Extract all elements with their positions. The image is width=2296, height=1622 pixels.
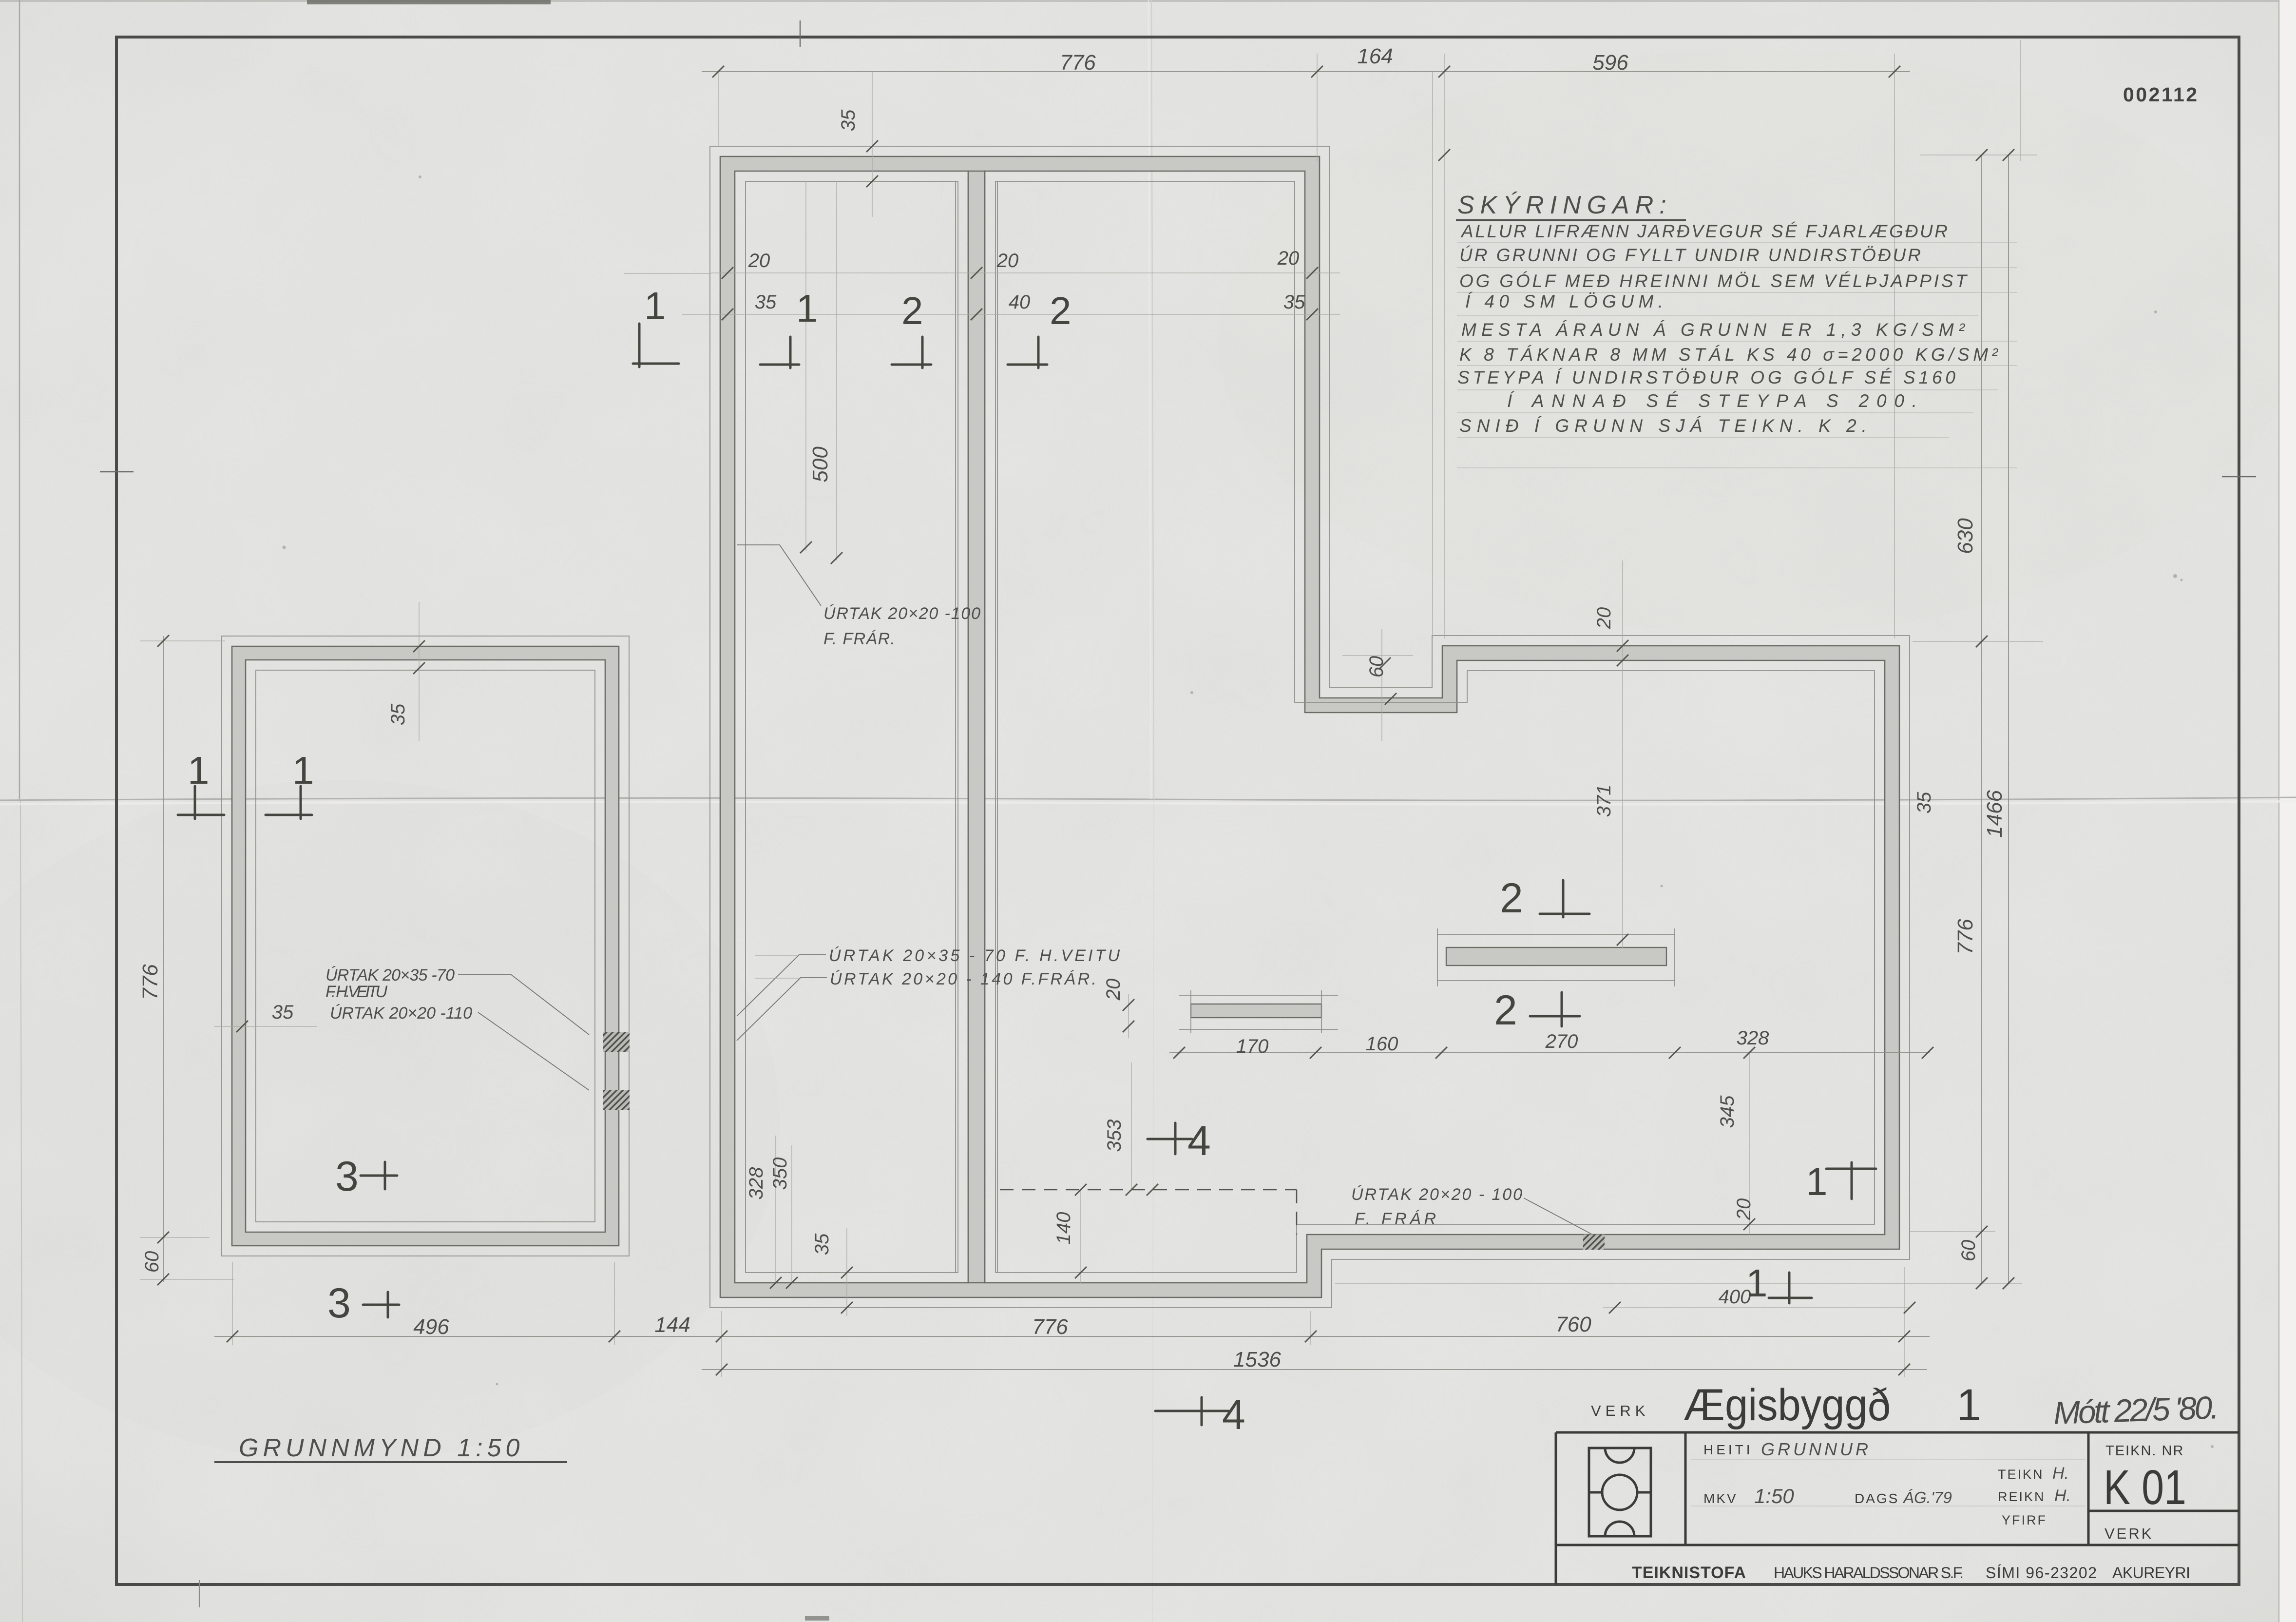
svg-text:1: 1 (796, 287, 818, 330)
svg-text:VERK: VERK (2105, 1525, 2153, 1542)
svg-text:60: 60 (1366, 656, 1387, 678)
svg-text:371: 371 (1593, 785, 1615, 817)
svg-text:2: 2 (1500, 875, 1523, 922)
svg-text:496: 496 (413, 1315, 449, 1339)
svg-text:160: 160 (1366, 1033, 1398, 1055)
svg-text:164: 164 (1357, 44, 1393, 68)
svg-text:353: 353 (1104, 1120, 1125, 1152)
svg-text:1: 1 (1746, 1261, 1768, 1305)
svg-text:20: 20 (748, 250, 770, 271)
svg-text:2: 2 (1494, 987, 1517, 1034)
svg-text:TEIKNISTOFA: TEIKNISTOFA (1632, 1564, 1746, 1582)
svg-text:776: 776 (1060, 51, 1096, 75)
svg-text:1466: 1466 (1983, 790, 2007, 838)
svg-text:2: 2 (901, 289, 923, 332)
svg-text:776: 776 (1953, 919, 1977, 955)
svg-text:ÚRTAK 20×35 - 70 F. H.VEITU: ÚRTAK 20×35 - 70 F. H.VEITU (829, 946, 1121, 965)
svg-text:F. FRÁR: F. FRÁR (1355, 1210, 1437, 1228)
svg-text:TEIKN. NR: TEIKN. NR (2105, 1443, 2184, 1459)
svg-text:345: 345 (1717, 1095, 1738, 1128)
svg-text:20: 20 (1103, 979, 1124, 1001)
svg-text:ÚRTAK 20×20 -110: ÚRTAK 20×20 -110 (330, 1004, 474, 1023)
svg-text:1: 1 (1806, 1160, 1828, 1203)
svg-text:630: 630 (1953, 518, 1977, 554)
svg-text:35: 35 (838, 109, 859, 131)
svg-text:596: 596 (1592, 51, 1628, 75)
svg-text:ÁG.'79: ÁG.'79 (1902, 1488, 1952, 1506)
svg-text:GRUNNUR: GRUNNUR (1761, 1439, 1871, 1459)
svg-text:20: 20 (996, 250, 1019, 271)
svg-text:VERK: VERK (1591, 1402, 1649, 1419)
svg-text:Ægisbyggð: Ægisbyggð (1684, 1380, 1891, 1430)
svg-text:ÚRTAK 20×20 -100: ÚRTAK 20×20 -100 (823, 604, 982, 623)
svg-text:GRUNNMYND 1:50: GRUNNMYND 1:50 (239, 1434, 524, 1462)
svg-text:K 01: K 01 (2104, 1460, 2186, 1515)
svg-text:328: 328 (746, 1167, 767, 1199)
svg-text:ÚRTAK 20×20 - 140 F.FRÁR.: ÚRTAK 20×20 - 140 F.FRÁR. (830, 970, 1098, 988)
svg-text:HAUKS HARALDSSONAR S.F.: HAUKS HARALDSSONAR S.F. (1774, 1564, 1964, 1582)
svg-text:3: 3 (327, 1280, 351, 1327)
svg-text:ÚRTAK 20×20 - 100: ÚRTAK 20×20 - 100 (1351, 1185, 1524, 1204)
svg-text:776: 776 (138, 964, 162, 1000)
svg-text:60: 60 (1958, 1240, 1979, 1262)
svg-text:35: 35 (811, 1233, 833, 1255)
svg-text:1:50: 1:50 (1754, 1485, 1794, 1507)
svg-text:35: 35 (1913, 792, 1935, 813)
svg-text:35: 35 (387, 703, 409, 725)
svg-text:4: 4 (1222, 1391, 1245, 1438)
svg-text:60: 60 (141, 1251, 163, 1273)
svg-text:170: 170 (1236, 1036, 1269, 1057)
svg-text:AKUREYRI: AKUREYRI (2112, 1564, 2190, 1582)
svg-text:35: 35 (272, 1002, 294, 1023)
svg-text:OG GÓLF MEÐ HREINNI MÖL SEM VÉ: OG GÓLF MEÐ HREINNI MÖL SEM VÉLÞJAPPIST (1459, 271, 1968, 291)
svg-text:1: 1 (644, 284, 666, 328)
svg-text:270: 270 (1545, 1031, 1578, 1052)
svg-text:F. H.VEITU: F. H.VEITU (325, 983, 389, 1001)
svg-text:3: 3 (335, 1153, 359, 1200)
svg-text:1536: 1536 (1233, 1348, 1281, 1371)
svg-text:144: 144 (654, 1313, 690, 1337)
svg-text:1: 1 (1956, 1380, 1981, 1430)
svg-text:20: 20 (1733, 1198, 1755, 1221)
svg-text:ÚR GRUNNI OG FYLLT UNDIR UNDIR: ÚR GRUNNI OG FYLLT UNDIR UNDIRSTÖÐUR (1459, 245, 1921, 265)
svg-text:350: 350 (769, 1158, 791, 1190)
svg-text:TEIKN: TEIKN (1998, 1467, 2044, 1482)
svg-text:20: 20 (1593, 607, 1615, 630)
svg-text:140: 140 (1053, 1212, 1074, 1245)
svg-text:F. FRÁR.: F. FRÁR. (823, 630, 897, 648)
svg-text:760: 760 (1555, 1313, 1591, 1336)
svg-text:H.: H. (2054, 1487, 2071, 1505)
svg-text:SÍMI 96-23202: SÍMI 96-23202 (1986, 1564, 2097, 1582)
svg-text:Mótt 22/5 '80.: Mótt 22/5 '80. (2053, 1389, 2219, 1431)
svg-text:YFIRF: YFIRF (2002, 1513, 2047, 1527)
svg-text:1: 1 (188, 749, 210, 792)
svg-text:4: 4 (1187, 1118, 1211, 1164)
svg-text:35: 35 (755, 291, 777, 313)
svg-text:35: 35 (1283, 291, 1305, 313)
svg-text:REIKN: REIKN (1998, 1489, 2046, 1504)
svg-text:500: 500 (808, 446, 832, 483)
svg-text:MKV: MKV (1703, 1491, 1738, 1506)
svg-text:1: 1 (292, 749, 314, 792)
svg-text:20: 20 (1277, 248, 1300, 269)
svg-text:H.: H. (2052, 1464, 2069, 1483)
svg-text:DAGS: DAGS (1855, 1491, 1899, 1506)
svg-text:HEITI: HEITI (1703, 1442, 1753, 1457)
svg-text:SKÝRINGAR:: SKÝRINGAR: (1457, 191, 1672, 219)
svg-text:2: 2 (1050, 289, 1071, 332)
svg-text:K 8 TÁKNAR 8 MM STÁL KS 40 σ: K 8 TÁKNAR 8 MM STÁL KS 40 σ=2000 KG/SM² (1459, 345, 1999, 365)
svg-text:002112: 002112 (2123, 83, 2199, 106)
svg-text:ÚRTAK 20×35 -70: ÚRTAK 20×35 -70 (325, 966, 456, 985)
svg-text:328: 328 (1737, 1027, 1769, 1049)
svg-text:776: 776 (1032, 1315, 1068, 1339)
svg-text:40: 40 (1009, 291, 1031, 313)
